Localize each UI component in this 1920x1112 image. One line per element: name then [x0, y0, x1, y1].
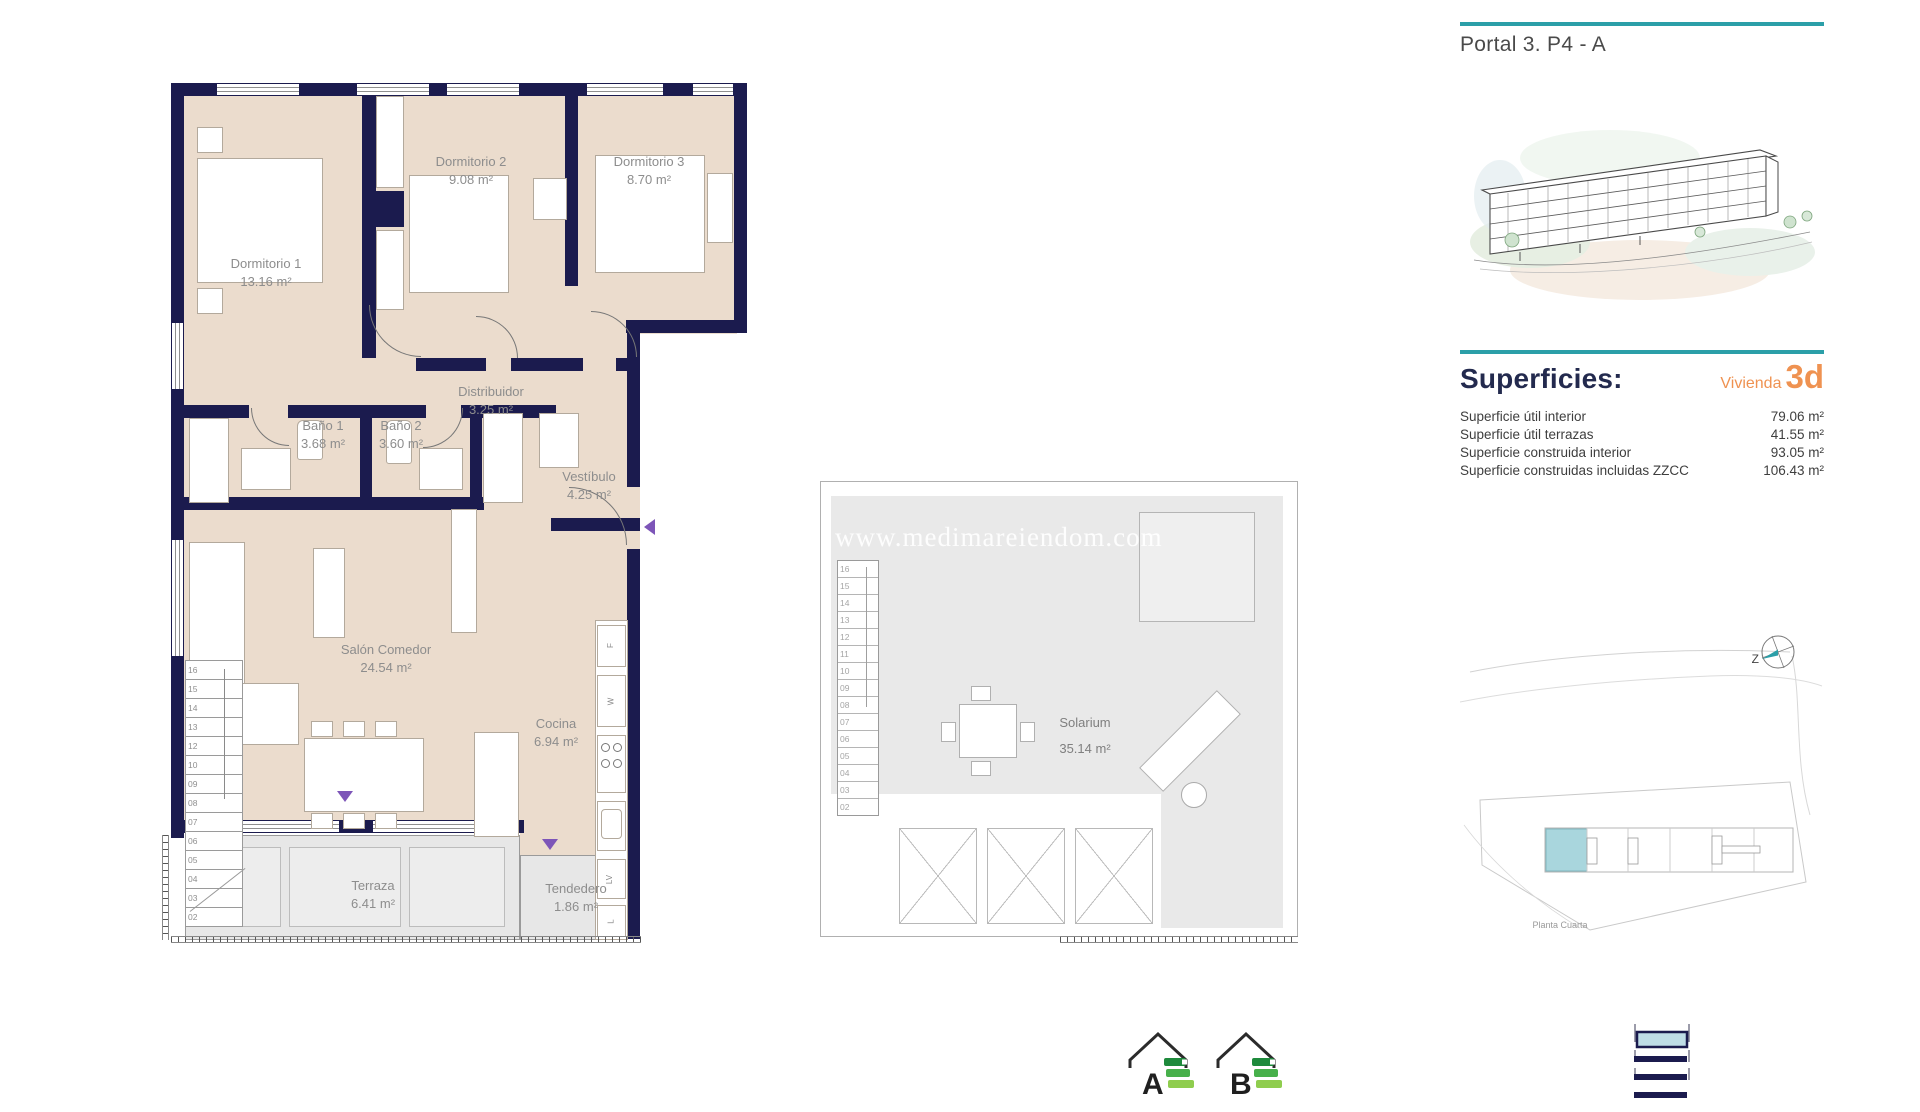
surface-label: Superficie útil terrazas	[1460, 426, 1594, 444]
room-name: Solarium	[1025, 714, 1145, 732]
surface-label: Superficie útil interior	[1460, 408, 1586, 426]
energy-house-a-icon: A	[1130, 1034, 1194, 1101]
partition	[451, 509, 477, 633]
vivienda-badge: Vivienda3d	[1720, 358, 1824, 396]
dining-chair	[343, 721, 365, 737]
room-name: Terraza	[313, 877, 433, 895]
surface-row: Superficie útil interior 79.06 m²	[1460, 408, 1824, 426]
window	[215, 84, 301, 95]
kitchen-sink-basin	[601, 809, 622, 839]
surface-value: 79.06 m²	[1771, 408, 1824, 426]
site-plan-caption: Planta Cuarta	[1532, 920, 1587, 930]
fridge-label: F	[606, 643, 615, 648]
side-table-round	[1181, 782, 1207, 808]
room-area: 35.14 m²	[1025, 740, 1145, 758]
room-name: Tendedero	[516, 880, 636, 898]
wall	[171, 83, 184, 838]
dining-chair	[311, 721, 333, 737]
shower-bano-2	[483, 413, 523, 503]
room-label-solarium: Solarium 35.14 m²	[1025, 714, 1145, 757]
room-area: 3.25 m²	[421, 401, 561, 419]
stairwell: 1615141312100908070605040302	[185, 660, 243, 927]
surface-row: Superficie construidas incluidas ZZCC 10…	[1460, 462, 1824, 480]
room-name: Cocina	[501, 715, 611, 733]
solarium-floor	[1161, 794, 1283, 928]
surface-label: Superficie construidas incluidas ZZCC	[1460, 462, 1689, 480]
superficies-header: Superficies: Vivienda3d	[1460, 358, 1824, 396]
wall-closet-block	[376, 191, 404, 227]
building-sketch	[1460, 92, 1824, 332]
shaft-void	[1075, 828, 1153, 924]
room-name: Distribuidor	[421, 383, 561, 401]
room-label-bano-1: Baño 1 3.68 m²	[278, 417, 368, 452]
stair-numbers: 1615141312100908070605040302	[188, 661, 197, 927]
hall-niche	[376, 96, 404, 188]
window	[691, 84, 735, 95]
room-label-vestibulo: Vestíbulo 4.25 m²	[529, 468, 649, 503]
wall	[734, 83, 747, 333]
site-highlighted-unit	[1546, 829, 1587, 871]
surfaces-table: Superficie útil interior 79.06 m² Superf…	[1460, 408, 1824, 480]
room-area: 6.94 m²	[501, 733, 611, 751]
shaft-void	[987, 828, 1065, 924]
floor-level-indicator-icon	[1630, 1020, 1696, 1100]
room-label-tendedero: Tendedero 1.86 m²	[516, 880, 636, 915]
stair-diagonal	[190, 868, 246, 912]
wall	[470, 405, 482, 510]
room-name: Salón Comedor	[306, 641, 466, 659]
window	[172, 538, 183, 658]
surface-value: 41.55 m²	[1771, 426, 1824, 444]
wall	[184, 405, 249, 418]
room-label-dormitorio-1: Dormitorio 1 13.16 m²	[196, 255, 336, 290]
tv-sideboard	[313, 548, 345, 638]
vivienda-value: 3d	[1785, 358, 1824, 395]
dining-chair	[375, 721, 397, 737]
room-label-dormitorio-3: Dormitorio 3 8.70 m²	[579, 153, 719, 188]
energy-house-b-icon: B	[1218, 1034, 1282, 1101]
stair-numbers: 161514131211100908070605040302	[840, 561, 849, 816]
solarium-plan: www.medimareiendom.com 16151413121110090…	[820, 481, 1298, 937]
vestibule-closet	[539, 413, 579, 468]
site-plan: Z Planta Cuarta	[1460, 630, 1824, 950]
room-name: Baño 1	[278, 417, 368, 435]
room-label-salon-comedor: Salón Comedor 24.54 m²	[306, 641, 466, 676]
room-area: 1.86 m²	[516, 898, 636, 916]
brochure-page: { "watermark": "www.medimareiendom.com",…	[0, 0, 1920, 1080]
dining-chair	[375, 813, 397, 829]
solarium-chair	[971, 686, 991, 701]
room-area: 24.54 m²	[306, 659, 466, 677]
hatch-strip	[162, 835, 169, 940]
solarium-table	[959, 704, 1017, 758]
room-name: Vestíbulo	[529, 468, 649, 486]
room-area: 9.08 m²	[401, 171, 541, 189]
laundry-unit-label: L	[607, 919, 616, 923]
nightstand	[197, 127, 223, 153]
energy-letter-a: A	[1142, 1068, 1164, 1101]
teal-rule-superficies	[1460, 350, 1824, 354]
room-label-cocina: Cocina 6.94 m²	[501, 715, 611, 750]
watermark-text: www.medimareiendom.com	[835, 522, 1163, 553]
room-area: 4.25 m²	[529, 486, 649, 504]
dining-chair	[343, 813, 365, 829]
wall	[416, 358, 486, 371]
room-label-terraza: Terraza 6.41 m²	[313, 877, 433, 912]
room-name: Dormitorio 2	[401, 153, 541, 171]
room-area: 3.68 m²	[278, 435, 368, 453]
room-label-distribuidor: Distribuidor 3.25 m²	[421, 383, 561, 418]
sink-bano-2	[419, 448, 463, 490]
solarium-stairwell: 161514131211100908070605040302	[837, 560, 879, 816]
window	[172, 321, 183, 391]
room-area: 8.70 m²	[579, 171, 719, 189]
vivienda-label: Vivienda	[1720, 375, 1781, 392]
orientation-marker	[337, 791, 353, 802]
stair-arrow-line	[224, 669, 225, 799]
solarium-chair	[971, 761, 991, 776]
hob-burner	[613, 743, 622, 752]
stair-arrow-line	[866, 567, 867, 707]
room-name: Dormitorio 1	[196, 255, 336, 273]
window	[585, 84, 665, 95]
surface-label: Superficie construida interior	[1460, 444, 1631, 462]
washer-label: W	[606, 698, 615, 706]
orientation-marker	[542, 839, 558, 850]
room-label-bano-2: Baño 2 3.60 m²	[356, 417, 446, 452]
surface-row: Superficie útil terrazas 41.55 m²	[1460, 426, 1824, 444]
wall	[616, 358, 640, 371]
portal-title: Portal 3. P4 - A	[1460, 33, 1606, 57]
hob-burner	[601, 759, 610, 768]
window	[355, 84, 431, 95]
room-area: 6.41 m²	[313, 895, 433, 913]
wall	[626, 320, 747, 333]
hob-burner	[613, 759, 622, 768]
solarium-chair	[941, 722, 956, 742]
sink-bano-1	[241, 448, 291, 490]
hatch-strip	[171, 936, 641, 943]
energy-rating-icons: A B	[1124, 1022, 1294, 1112]
dining-chair	[311, 813, 333, 829]
room-name: Dormitorio 3	[579, 153, 719, 171]
surface-value: 93.05 m²	[1771, 444, 1824, 462]
room-name: Baño 2	[356, 417, 446, 435]
superficies-title: Superficies:	[1460, 363, 1623, 395]
window	[445, 84, 521, 95]
surface-row: Superficie construida interior 93.05 m²	[1460, 444, 1824, 462]
hatch-strip	[1060, 936, 1298, 943]
entrance-marker	[644, 519, 655, 535]
surface-value: 106.43 m²	[1763, 462, 1824, 480]
shaft-void	[899, 828, 977, 924]
energy-letter-b: B	[1230, 1068, 1252, 1101]
teal-rule-top	[1460, 22, 1824, 26]
dining-table	[304, 738, 424, 812]
apartment-floor-plan: F W LV L 1615141312100908070605040302 Do…	[171, 83, 747, 943]
bed-dormitorio-2	[409, 175, 509, 293]
wall	[511, 358, 583, 371]
room-area: 13.16 m²	[196, 273, 336, 291]
compass-letter: Z	[1752, 652, 1759, 666]
nightstand	[197, 288, 223, 314]
bathtub-bano-1	[189, 418, 229, 503]
wall	[184, 497, 484, 510]
room-area: 3.60 m²	[356, 435, 446, 453]
room-label-dormitorio-2: Dormitorio 2 9.08 m²	[401, 153, 541, 188]
hall-niche	[376, 230, 404, 310]
